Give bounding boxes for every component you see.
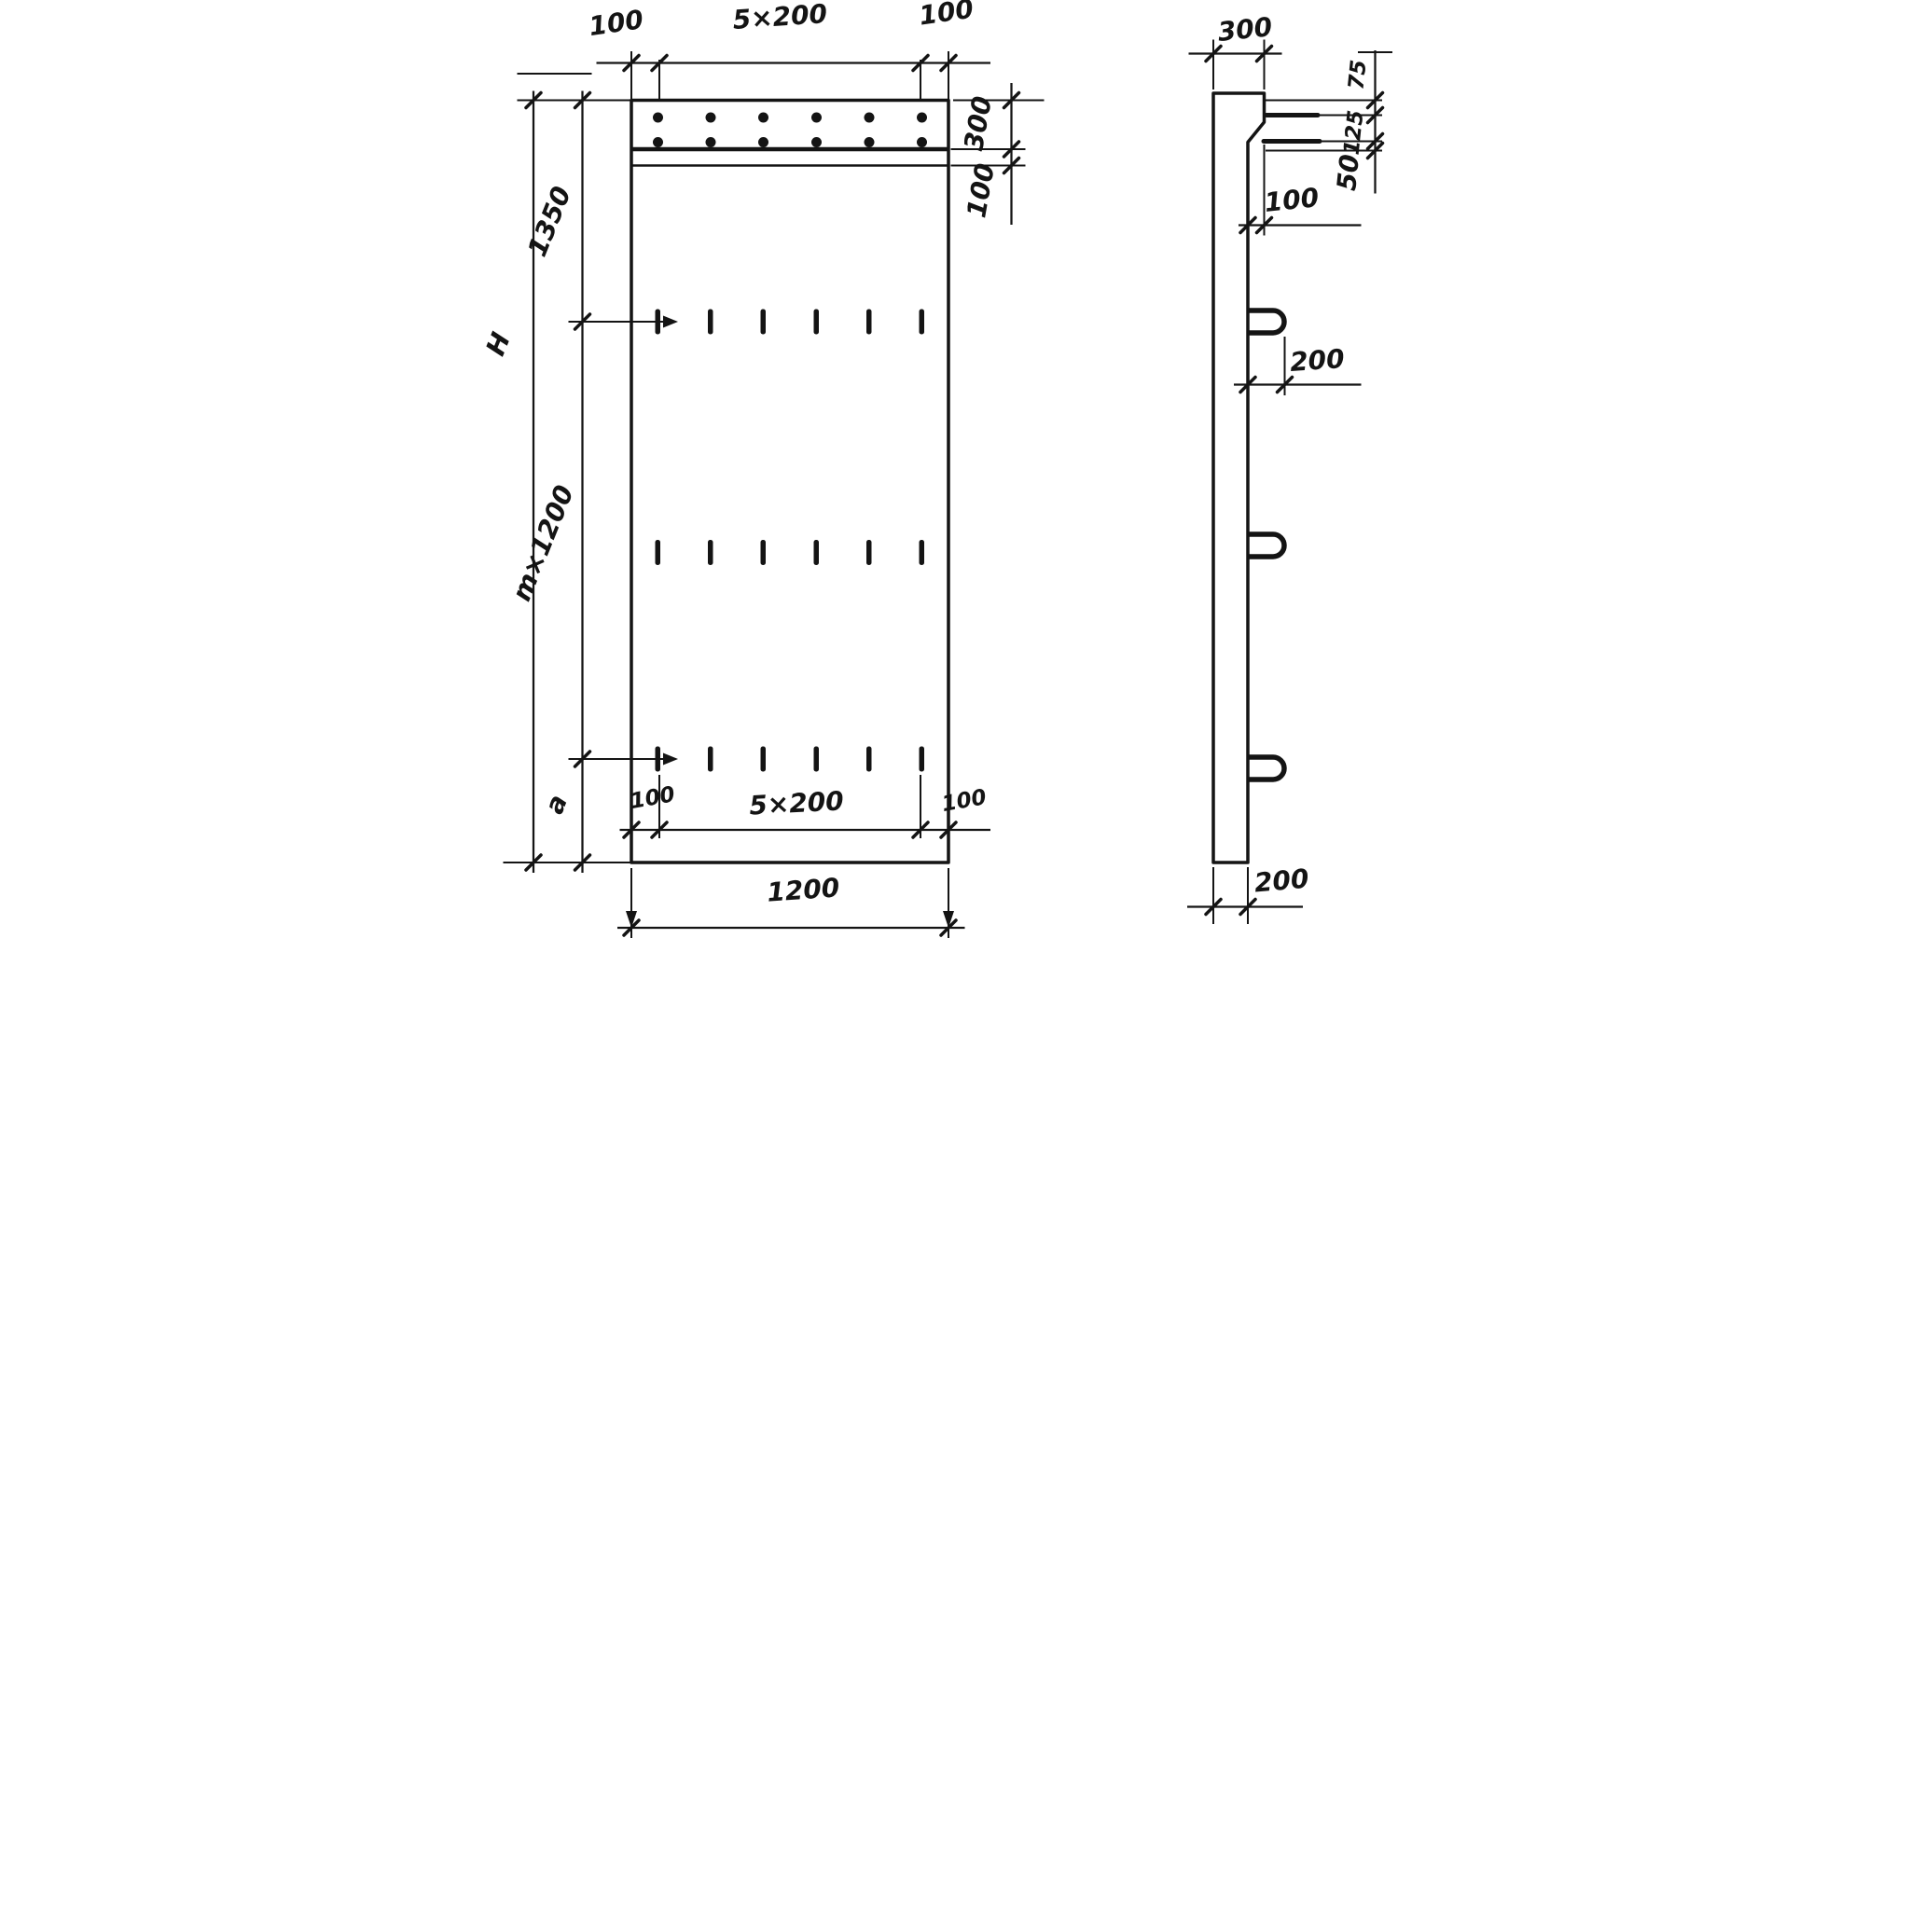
slot-row-2	[656, 540, 925, 565]
dim-side-bar-offset-1: 75	[1344, 59, 1371, 91]
row3-arrow	[663, 753, 678, 766]
slot-row-3	[656, 747, 925, 772]
side-dimensions: 300 75 125 50 100 200 200	[1187, 11, 1392, 924]
technical-drawing-canvas: 100 5×200 100 300 100 H 1350 m×1200 a	[477, 0, 1432, 966]
dim-front-inner-left: 100	[629, 782, 677, 814]
dim-front-upper-height: 1350	[521, 182, 577, 261]
dim-front-band-height: 300	[958, 94, 998, 153]
lifting-loop-2	[1248, 534, 1284, 557]
row1-arrow	[663, 316, 678, 328]
front-view	[631, 101, 948, 863]
lifting-loop-1	[1248, 310, 1284, 333]
side-outline	[1213, 93, 1265, 862]
slot-row-1	[656, 310, 925, 335]
dim-side-bar-offset-2: 125	[1340, 109, 1369, 156]
dim-side-top-width: 300	[1216, 11, 1274, 48]
dim-front-inner-span: 5×200	[749, 785, 845, 821]
drawing-sheet: 100 5×200 100 300 100 H 1350 m×1200 a	[477, 0, 1432, 966]
dim-front-overall-width: 1200	[766, 872, 840, 907]
dim-front-top-right: 100	[917, 0, 975, 31]
dim-side-thickness: 200	[1253, 863, 1310, 899]
dim-front-top-span: 5×200	[732, 0, 828, 35]
dim-front-top-left: 100	[587, 4, 644, 42]
dim-front-total-height: H	[480, 328, 517, 360]
dim-side-step: 100	[1263, 182, 1321, 218]
dim-side-bar-offset-3: 50	[1331, 153, 1365, 192]
dim-side-loop: 200	[1289, 343, 1346, 378]
dim-front-lower-height: a	[538, 790, 574, 818]
panel-outline	[631, 101, 948, 863]
lifting-loop-3	[1248, 757, 1284, 780]
dim-front-strip-height: 100	[961, 161, 1001, 220]
dim-front-middle-height: m×1200	[505, 481, 580, 605]
anchor-dots	[653, 113, 927, 148]
